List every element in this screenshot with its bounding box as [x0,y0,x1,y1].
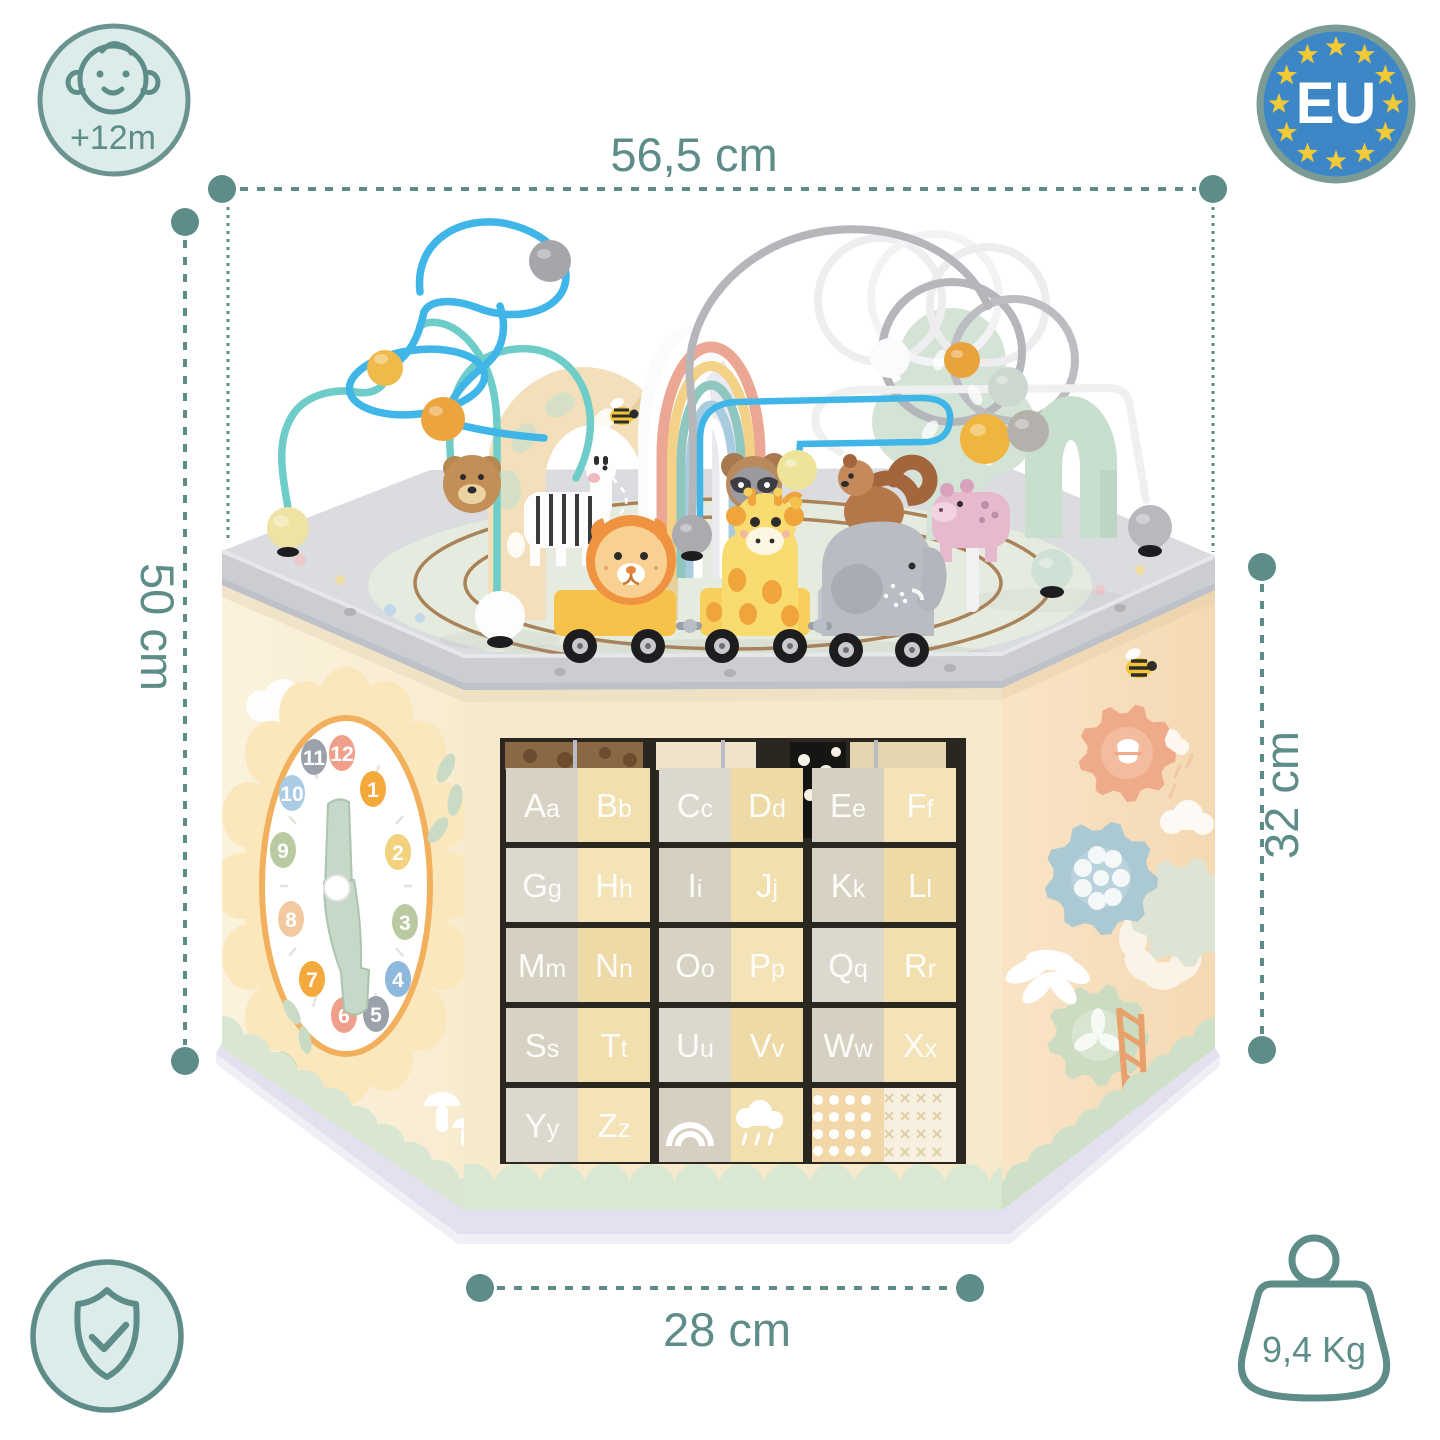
svg-text:32 cm: 32 cm [1255,731,1308,859]
svg-text:9: 9 [277,840,289,863]
svg-text:11: 11 [303,747,326,770]
svg-text:10: 10 [280,783,303,806]
svg-text:1: 1 [367,779,379,802]
svg-text:9,4 Kg: 9,4 Kg [1262,1329,1366,1370]
svg-text:8: 8 [285,909,297,932]
svg-text:56,5 cm: 56,5 cm [610,128,777,181]
svg-text:EU: EU [1296,71,1377,136]
svg-text:7: 7 [306,969,318,992]
svg-text:2: 2 [392,842,404,865]
svg-text:50 cm: 50 cm [131,563,184,691]
svg-text:5: 5 [370,1004,382,1027]
svg-text:4: 4 [392,969,404,992]
svg-text:+12m: +12m [70,119,156,157]
svg-text:3: 3 [399,912,411,935]
svg-text:28 cm: 28 cm [663,1303,791,1356]
svg-text:12: 12 [330,743,353,766]
